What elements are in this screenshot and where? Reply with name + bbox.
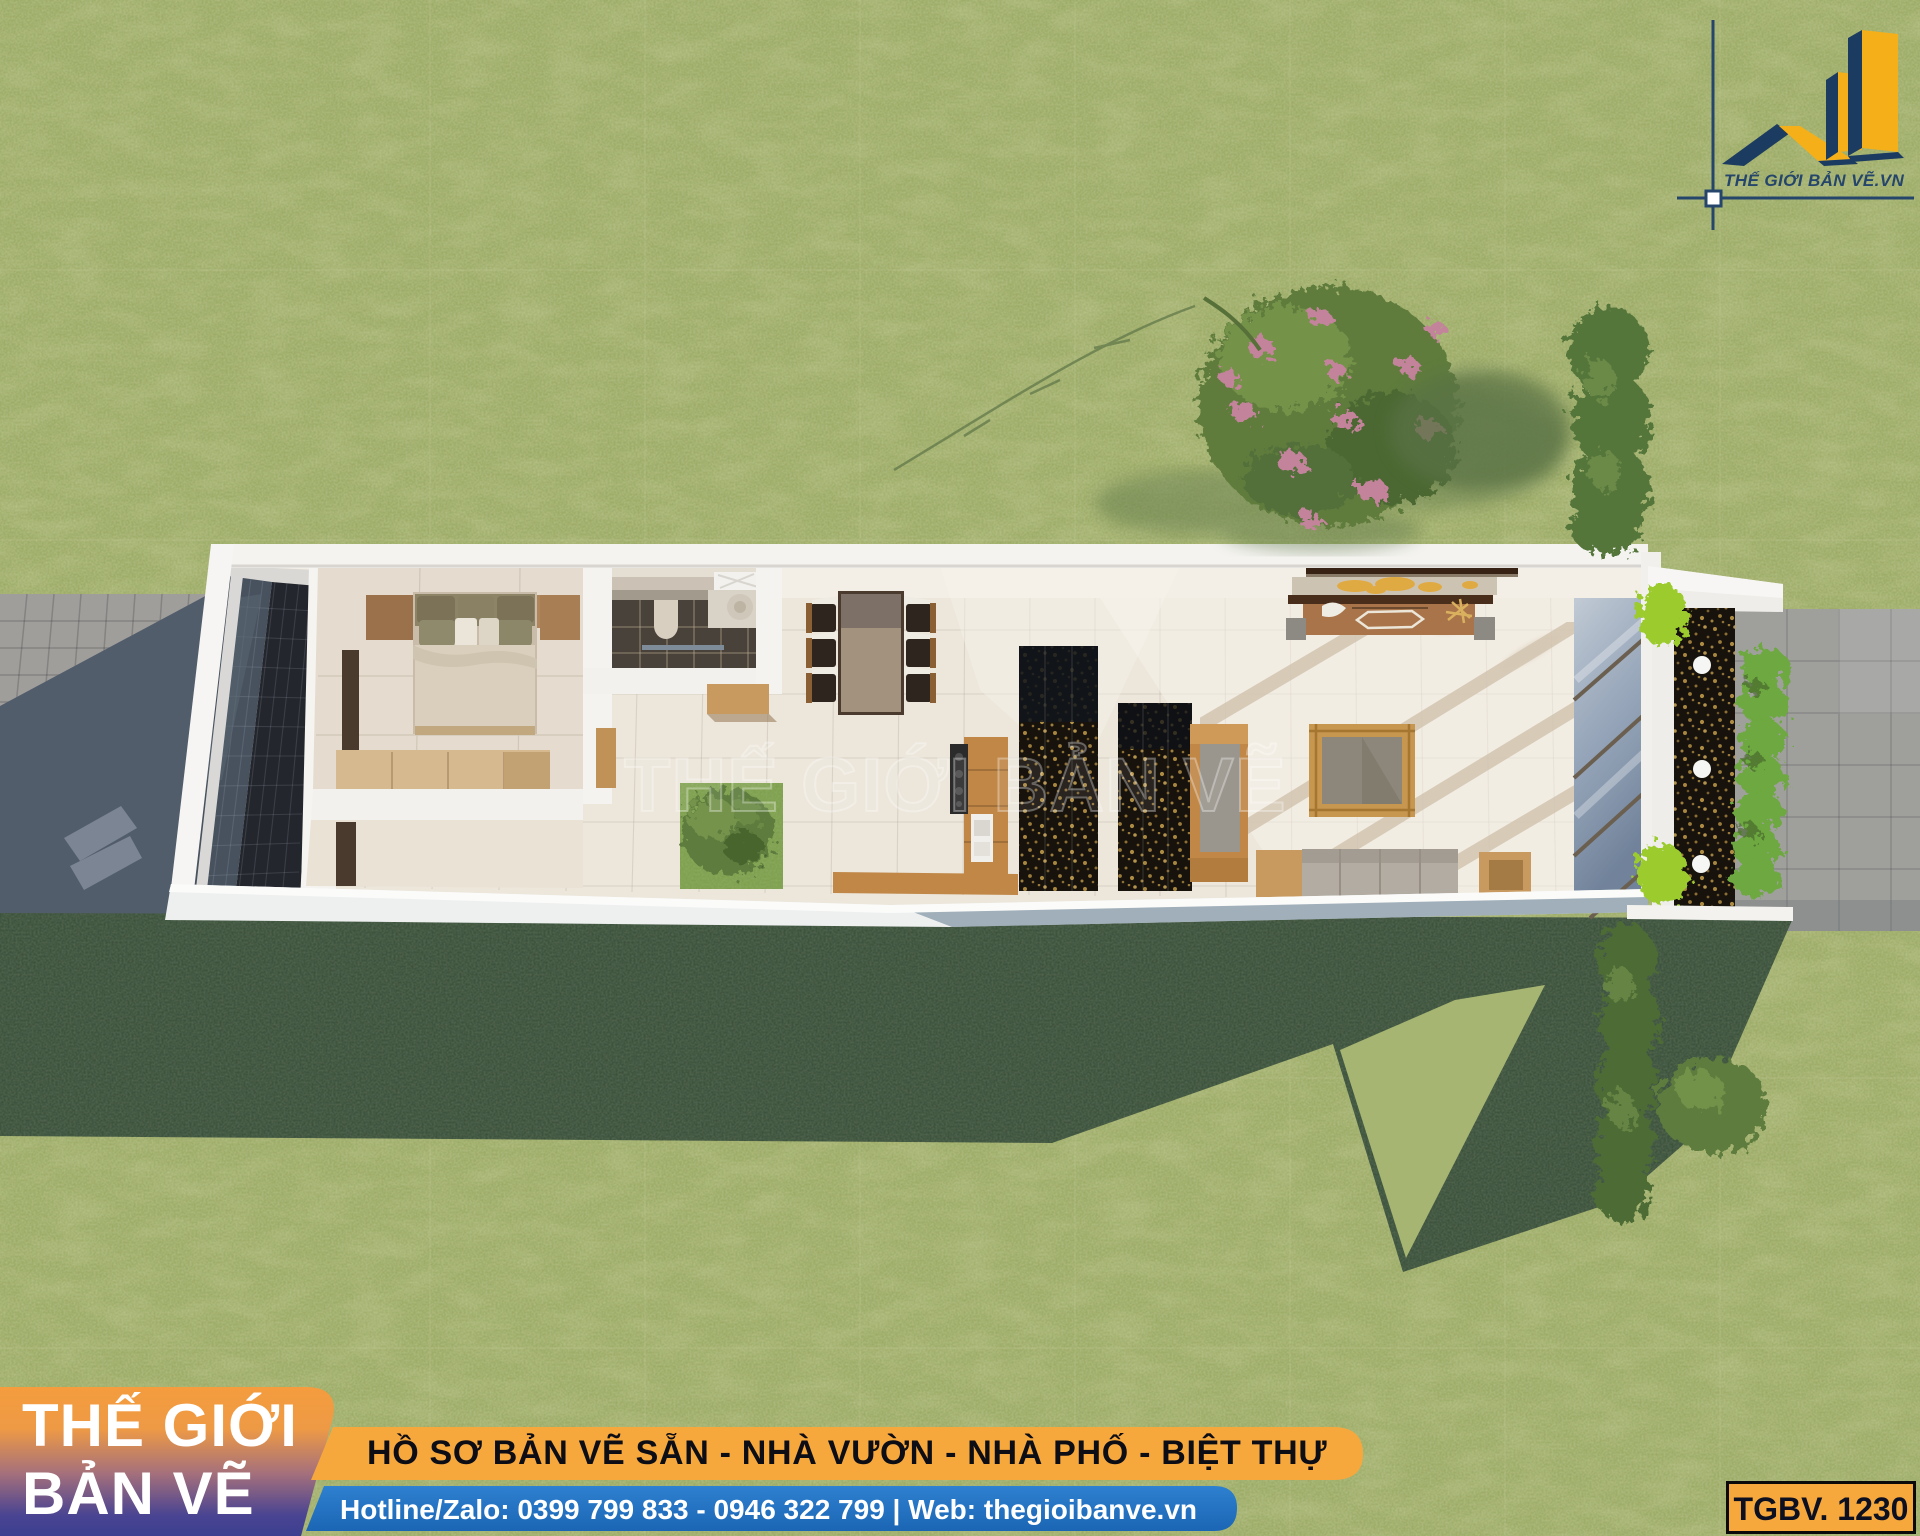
svg-text:THẾ GIỚI BẢN VẼ.VN: THẾ GIỚI BẢN VẼ.VN	[1724, 170, 1904, 190]
